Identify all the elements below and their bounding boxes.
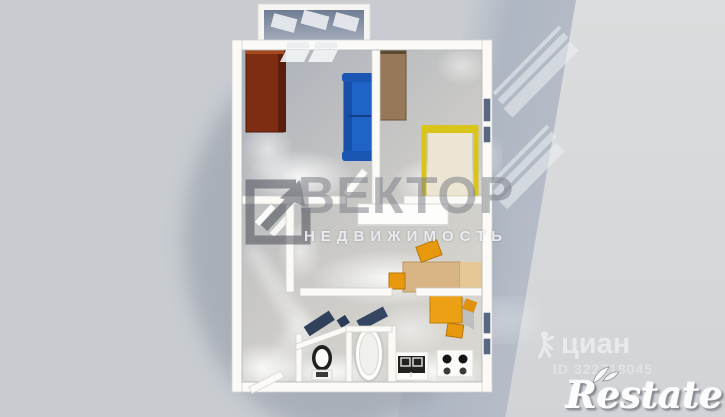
agency-watermark-title: ВЕКТОР (286, 170, 526, 222)
stove (437, 350, 473, 380)
portal-watermark: циан (537, 330, 630, 359)
restate-watermark: Restate (566, 373, 723, 417)
bathtub (355, 327, 383, 381)
stool (446, 323, 464, 338)
brown-wardrobe (376, 48, 406, 120)
desk (403, 262, 482, 292)
walking-person-icon (537, 330, 556, 359)
agency-watermark-subtitle: НЕДВИЖИМОСТЬ (288, 228, 524, 245)
blue-sofa (342, 73, 376, 161)
real-estate-listing-image: ВЕКТОР НЕДВИЖИМОСТЬ циан ID 322718045 Re… (0, 0, 725, 417)
toilet (312, 345, 332, 380)
portal-watermark-name: циан (561, 330, 630, 359)
red-wardrobe (246, 46, 286, 132)
sink-counter (394, 352, 428, 380)
stool (389, 273, 405, 289)
